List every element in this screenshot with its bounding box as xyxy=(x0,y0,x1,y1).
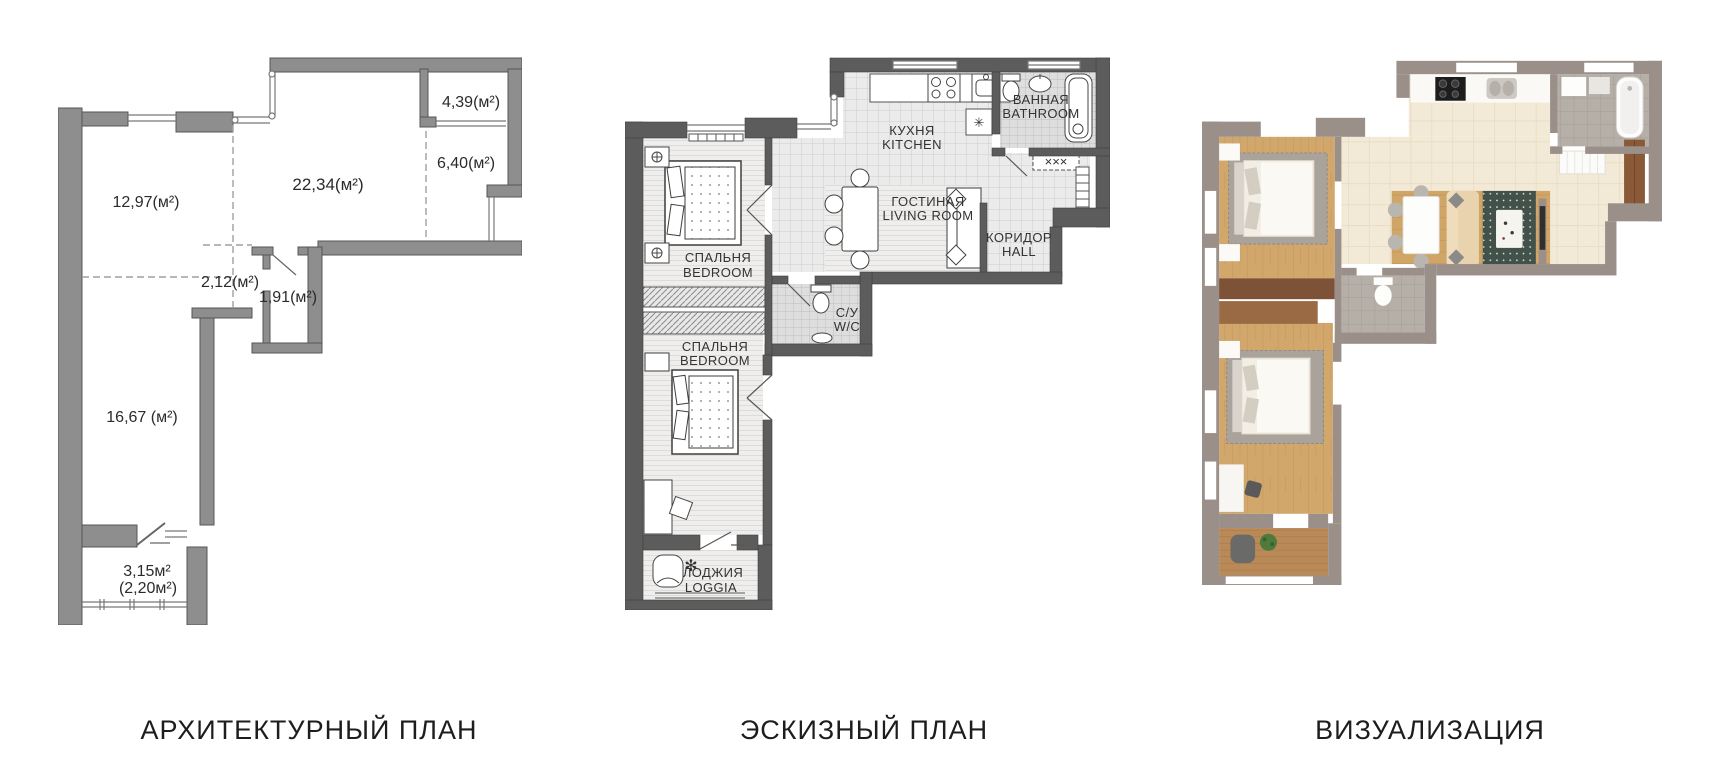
area-hall-small: 2,12(м²) xyxy=(201,274,259,291)
fridge-mark: ✳ xyxy=(974,115,985,130)
area-room-right: 6,40(м²) xyxy=(437,155,495,172)
viz-washing-machine-icon xyxy=(1560,151,1606,174)
label-hall-ru: КОРИДОР xyxy=(986,230,1052,245)
label-bathroom-ru: ВАННАЯ xyxy=(1013,92,1069,107)
viz-stove-icon xyxy=(1435,77,1465,101)
visualization-plan xyxy=(1202,58,1662,585)
arch-windows xyxy=(82,71,506,610)
label-wc-en: W/C xyxy=(834,319,860,334)
armchair-icon xyxy=(653,555,683,587)
label-loggia-en: LOGGIA xyxy=(685,580,737,595)
viz-plant-icon xyxy=(1260,534,1277,551)
floorplan-triptych: 12,97(м²) 22,34(м²) 4,39(м²) 6,40(м²) 2,… xyxy=(0,0,1716,782)
window-radiator-icon xyxy=(689,134,743,141)
label-bedroom2-ru: СПАЛЬНЯ xyxy=(682,339,748,354)
area-living-large: 22,34(м²) xyxy=(292,175,363,194)
architectural-plan: 12,97(м²) 22,34(м²) 4,39(м²) 6,40(м²) 2,… xyxy=(58,55,522,625)
area-room-bottom: 16,67 (м²) xyxy=(106,409,177,426)
label-hall-en: HALL xyxy=(1002,244,1036,259)
area-room-left: 12,97(м²) xyxy=(112,194,179,211)
label-kitchen-en: KITCHEN xyxy=(882,137,942,152)
label-kitchen-ru: КУХНЯ xyxy=(889,123,934,138)
viz-washbasin-icon xyxy=(1561,77,1586,96)
sketch-plan: ✻ ✳ xyxy=(625,55,1110,610)
arch-walls xyxy=(58,58,522,625)
area-balcony-top: 4,39(м²) xyxy=(442,94,500,111)
label-living-en: LIVING ROOM xyxy=(882,208,973,223)
viz-rug xyxy=(1483,191,1536,267)
viz-bed2-icon xyxy=(1219,341,1323,444)
area-loggia: 3,15м² xyxy=(123,563,171,580)
bed-icon xyxy=(665,161,741,245)
label-bedroom1-ru: СПАЛЬНЯ xyxy=(685,250,751,265)
viz-wardrobe-icon xyxy=(1219,278,1335,324)
label-bedroom1-en: BEDROOM xyxy=(683,265,753,280)
viz-bed1-icon xyxy=(1219,143,1327,261)
stove-icon xyxy=(928,74,960,102)
area-loggia-reduced: (2,20м²) xyxy=(119,580,177,597)
area-wc-small: 1,91(м²) xyxy=(259,289,317,306)
viz-tv-icon xyxy=(1540,206,1546,250)
label-wc-ru: С/У xyxy=(836,305,859,320)
viz-armchair-icon xyxy=(1230,535,1255,563)
label-loggia-ru: ЛОДЖИЯ xyxy=(683,565,743,580)
viz-coffee-table-icon xyxy=(1496,210,1523,248)
label-living-ru: ГОСТИНАЯ xyxy=(891,194,964,209)
viz-sofa-icon xyxy=(1447,191,1479,267)
viz-kitchen-counter-icon xyxy=(1411,74,1550,102)
caption-visualization: ВИЗУАЛИЗАЦИЯ xyxy=(1180,710,1680,750)
caption-sketch: ЭСКИЗНЫЙ ПЛАН xyxy=(614,710,1114,750)
viz-wc-toilet-icon xyxy=(1374,277,1393,305)
label-bathroom-en: BATHROOM xyxy=(1002,106,1079,121)
wardrobe-strips xyxy=(643,287,765,334)
caption-architectural: АРХИТЕКТУРНЫЙ ПЛАН xyxy=(59,710,559,750)
label-bedroom2-en: BEDROOM xyxy=(680,353,750,368)
